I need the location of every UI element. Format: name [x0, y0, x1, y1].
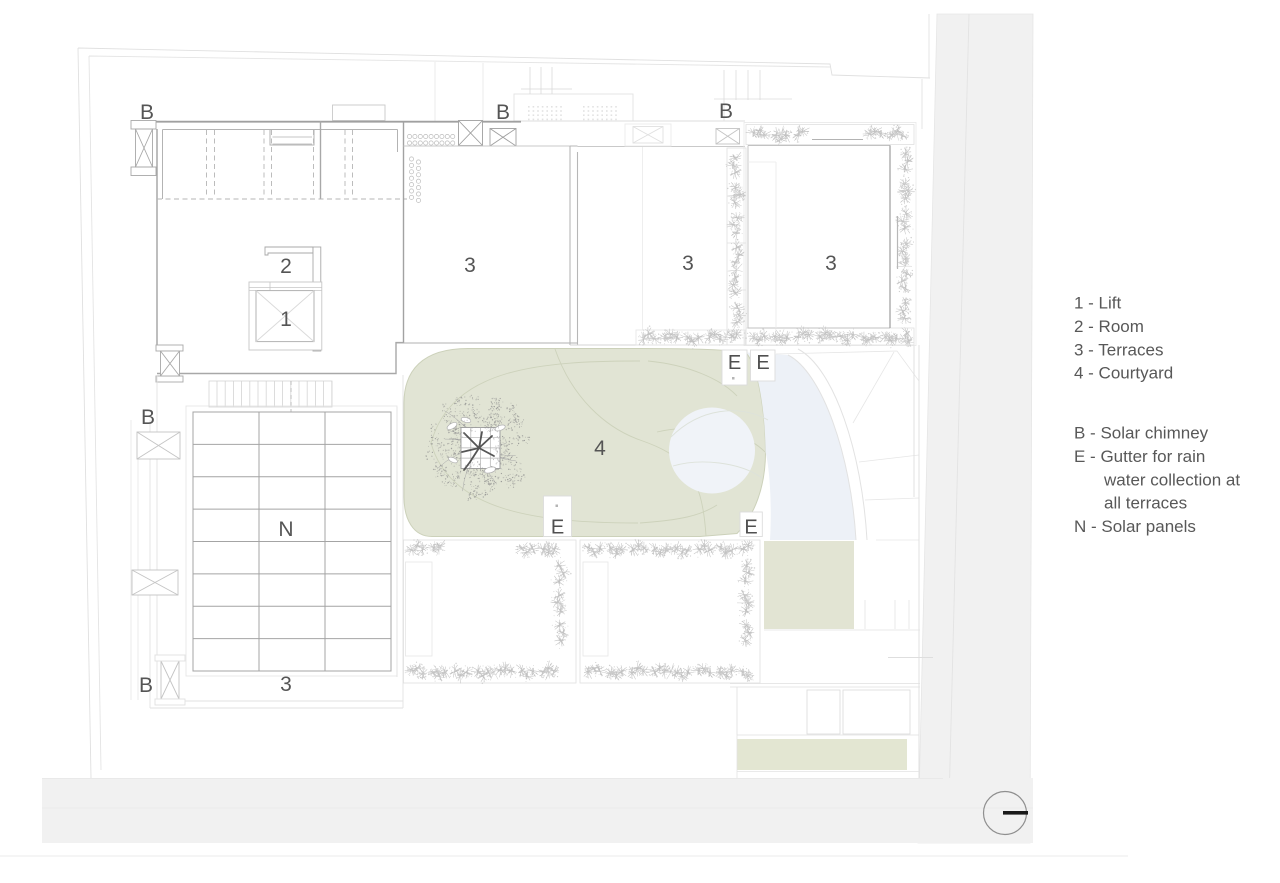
svg-text:3: 3 [280, 673, 292, 696]
svg-text:4: 4 [594, 437, 606, 460]
svg-text:E: E [551, 517, 564, 539]
svg-text:B: B [496, 101, 510, 124]
svg-text:E: E [744, 517, 757, 539]
svg-text:1 - Lift: 1 - Lift [1074, 294, 1122, 313]
svg-text:B: B [719, 100, 733, 123]
svg-text:all terraces: all terraces [1104, 494, 1187, 513]
svg-text:B: B [141, 406, 155, 429]
svg-text:3: 3 [682, 252, 694, 275]
svg-text:1: 1 [280, 308, 292, 331]
svg-text:B - Solar chimney: B - Solar chimney [1074, 424, 1209, 443]
svg-text:3: 3 [464, 254, 476, 277]
svg-text:water collection at: water collection at [1103, 470, 1240, 489]
svg-text:N: N [278, 518, 293, 541]
svg-text:3 - Terraces: 3 - Terraces [1074, 340, 1163, 359]
svg-text:E - Gutter for rain: E - Gutter for rain [1074, 447, 1205, 466]
svg-text:B: B [140, 101, 154, 124]
svg-text:4 - Courtyard: 4 - Courtyard [1074, 364, 1173, 383]
svg-text:N - Solar panels: N - Solar panels [1074, 517, 1196, 536]
svg-text:B: B [139, 674, 153, 697]
svg-text:E: E [756, 352, 769, 374]
svg-text:2 - Room: 2 - Room [1074, 317, 1144, 336]
svg-text:E: E [728, 352, 741, 374]
svg-text:3: 3 [825, 252, 837, 275]
svg-text:2: 2 [280, 255, 292, 278]
